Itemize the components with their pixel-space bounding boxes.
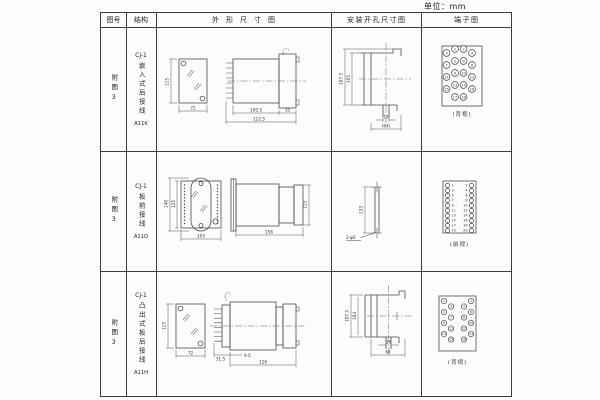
dim-label: 107.5 [345,310,350,322]
svg-text:16: 16 [470,87,475,91]
hole-callout-label: 2-φ6 [346,235,356,240]
header-structure: 结构 [126,13,156,27]
model-label: CJ-1 [135,292,147,299]
outline-drawing-row2: 140 125 105 156 115 [156,151,331,271]
dim-label: 31.5 [216,357,226,362]
figure-cell-row1: 附图3 [101,27,126,151]
svg-text:1: 1 [452,184,454,188]
type-code: A11Q [134,234,148,240]
hatch-arrow-icon [191,191,198,198]
hatch-arrow-icon [183,314,190,321]
dim-label: 64 [385,350,391,355]
terminal-grid-row3: 12345678910111213141516 [441,298,473,342]
svg-text:4: 4 [465,189,467,193]
install-drawing-row3: 107.5 104 16 64 [331,271,421,396]
pins-icon [226,63,233,98]
svg-text:9: 9 [443,321,445,325]
type-code: A11K [134,121,148,127]
svg-text:7: 7 [452,199,454,203]
structure-cell-row2: CJ-1 板前接线 A11Q [126,151,156,271]
svg-text:14: 14 [463,214,467,218]
svg-text:6: 6 [465,194,467,198]
svg-text:2: 2 [462,47,464,51]
terminal-grid-row1: 123456789101112131415161718 [443,46,475,101]
svg-text:11: 11 [449,327,453,331]
svg-text:7: 7 [445,63,447,67]
dim-label: 72 [188,351,194,356]
dim-label: (64) [382,124,391,129]
svg-text:17: 17 [453,95,458,99]
hatch-arrow-icon [194,83,201,90]
dim-label: 35 [285,108,291,113]
centerline [359,43,411,123]
svg-text:15: 15 [444,87,449,91]
svg-text:5: 5 [454,59,456,63]
hook-mark-icon [225,293,231,301]
dim-label: 115 [165,78,170,86]
header-figure-no: 图号 [101,13,126,27]
dim-label: 126 [259,360,267,365]
svg-text:3: 3 [445,51,447,55]
svg-text:13: 13 [453,83,458,87]
svg-text:20: 20 [463,229,467,233]
svg-text:8: 8 [463,316,465,320]
dim-label: 100.5 [250,108,262,113]
svg-text:12: 12 [462,327,466,331]
document-page: 单位：mm 图号 结构 外形尺寸图 安装开孔尺寸图 端子图 附图3 CJ-1 嵌… [0,0,600,400]
pins-icon [214,309,222,341]
svg-text:11: 11 [444,75,449,79]
screw-hole-icon [198,341,203,346]
terminal-drawing-row3: 12345678910111213141516 (背视) [421,271,511,396]
svg-text:3: 3 [450,305,452,309]
structure-label: 嵌入式后接线 [138,62,145,116]
svg-text:16: 16 [462,338,466,342]
svg-text:2: 2 [470,299,472,303]
dim-label: 156 [265,230,273,235]
dim-label: 125 [171,200,176,208]
svg-text:9: 9 [452,204,454,208]
svg-text:14: 14 [461,83,466,87]
install-drawing-row2: 133 2-φ6 [331,151,421,271]
install-drawing-row1: 107.5 105 16 (64) [331,27,421,151]
svg-text:18: 18 [463,224,467,228]
screw-hole-icon [178,306,183,311]
dim-label: 115 [162,322,167,330]
dim-label: 16 [383,115,389,120]
structure-label: 板前接线 [138,193,145,229]
svg-text:10: 10 [463,204,467,208]
hatch-arrow-icon [187,70,194,77]
figure-no: 附图3 [110,196,117,226]
svg-text:12: 12 [463,209,467,213]
dim-label: 104 [352,312,357,320]
screw-hole-icon [181,61,186,66]
screw-hole-icon [199,182,203,186]
svg-text:7: 7 [450,316,452,320]
hatch-arrow-icon [200,205,207,212]
screw-hole-icon [199,224,203,228]
svg-text:12: 12 [470,75,475,79]
svg-text:3: 3 [452,189,454,193]
header-terminal: 端子图 [421,13,511,27]
svg-text:13: 13 [442,332,446,336]
model-label: CJ-1 [135,183,147,190]
view-label: (前视) [450,240,469,248]
centerline [367,285,413,355]
hook-mark-icon [283,49,289,56]
svg-text:5: 5 [443,310,445,314]
outline-drawing-row3: 115 72 31.5 9.5 126 [156,271,331,396]
header-outline: 外形尺寸图 [156,13,331,27]
dim-label: 105 [346,75,351,83]
svg-text:2: 2 [465,184,467,188]
structure-cell-row1: CJ-1 嵌入式后接线 A11K [126,27,156,151]
figure-no: 附图3 [110,74,117,104]
screw-hole-icon [200,96,205,101]
view-label: (背视) [448,358,467,366]
dim-label: 122.5 [253,117,265,122]
model-label: CJ-1 [135,52,147,59]
dim-label: 107.5 [339,73,344,85]
svg-text:6: 6 [470,310,472,314]
dim-label: 115 [303,201,308,209]
unit-label: 单位：mm [424,1,466,12]
svg-text:1: 1 [443,299,445,303]
svg-text:10: 10 [469,321,473,325]
figure-cell-row3: 附图3 [101,271,126,396]
svg-text:10: 10 [461,71,466,75]
dim-label: 16 [386,340,392,345]
hatch-arrow-icon [191,328,198,335]
terminal-drawing-row2: 1234567891011121314151617181920 (前视) [421,151,511,271]
dim-label: 133 [359,206,364,214]
screw-hole-icon [213,219,218,224]
dim-label: 72 [190,106,196,111]
figure-cell-row2: 附图3 [101,151,126,271]
svg-text:11: 11 [452,209,456,213]
svg-text:1: 1 [454,47,456,51]
spec-table: 图号 结构 外形尺寸图 安装开孔尺寸图 端子图 附图3 CJ-1 嵌入式后接线 … [100,12,512,397]
svg-text:15: 15 [449,338,453,342]
terminal-grid-row2: 1234567891011121314151617181920 [445,183,473,232]
svg-text:13: 13 [452,214,456,218]
svg-text:19: 19 [452,229,456,233]
terminal-drawing-row1: 123456789101112131415161718 (背视) [421,27,511,151]
type-code: A11H [134,370,148,376]
structure-label: 凸出式板后接线 [138,302,145,365]
svg-text:16: 16 [463,219,467,223]
header-install: 安装开孔尺寸图 [331,13,421,27]
view-label: (背视) [452,110,471,118]
dim-label: 140 [164,200,169,208]
svg-text:18: 18 [461,95,466,99]
svg-text:8: 8 [465,199,467,203]
svg-text:4: 4 [463,305,465,309]
svg-text:15: 15 [452,219,456,223]
dim-label: 105 [197,234,205,239]
hole-cross-icon [372,182,382,239]
dim-label: 9.5 [244,353,251,358]
outline-drawing-row1: 115 72 100.5 35 122.5 [156,27,331,151]
svg-text:14: 14 [469,332,473,336]
svg-text:5: 5 [452,194,454,198]
structure-cell-row3: CJ-1 凸出式板后接线 A11H [126,271,156,396]
figure-no: 附图3 [110,319,117,349]
svg-text:17: 17 [452,224,456,228]
